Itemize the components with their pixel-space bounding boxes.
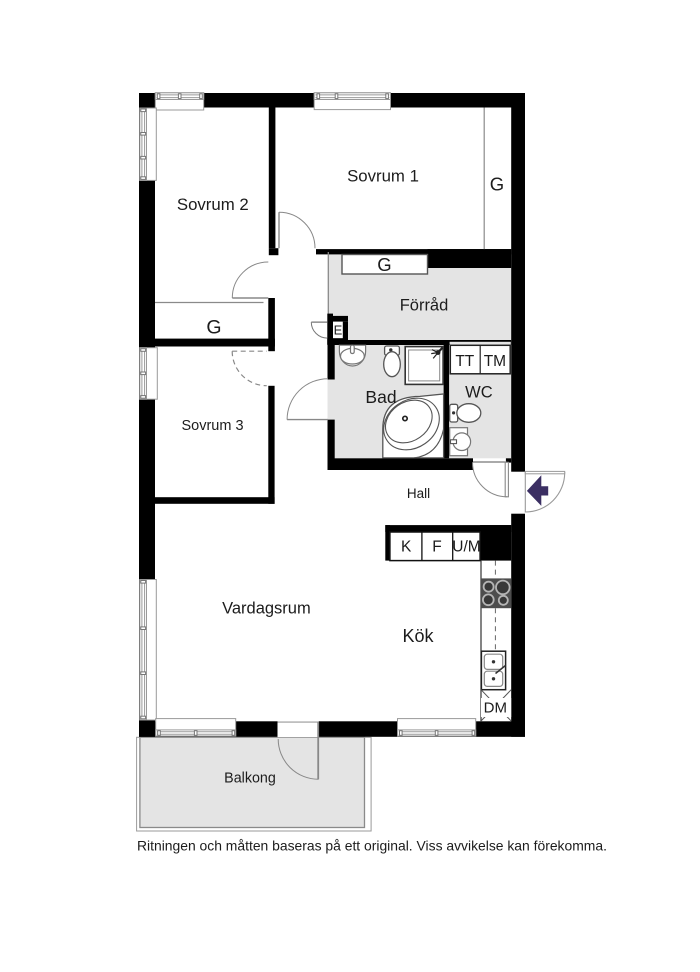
svg-text:Bad: Bad [365,387,396,407]
svg-text:Balkong: Balkong [224,771,276,787]
svg-text:G: G [490,174,504,195]
svg-text:Förråd: Förråd [400,297,449,315]
svg-text:Kök: Kök [402,626,434,646]
svg-text:Ritningen och måtten baseras p: Ritningen och måtten baseras på ett orig… [137,838,607,854]
svg-text:TM: TM [484,353,506,370]
svg-text:Vardagsrum: Vardagsrum [222,600,311,618]
svg-text:F: F [432,539,441,556]
svg-text:U/M: U/M [452,539,480,556]
svg-text:TT: TT [455,353,474,370]
svg-text:Hall: Hall [407,486,430,501]
svg-text:K: K [401,539,412,556]
svg-text:Sovrum 1: Sovrum 1 [347,167,419,186]
svg-text:G: G [206,317,221,339]
svg-text:Sovrum 2: Sovrum 2 [177,195,249,214]
svg-text:E: E [334,323,343,338]
svg-text:G: G [377,254,391,275]
svg-text:Sovrum 3: Sovrum 3 [181,418,243,434]
svg-text:WC: WC [465,384,493,402]
svg-text:DM: DM [484,700,507,717]
